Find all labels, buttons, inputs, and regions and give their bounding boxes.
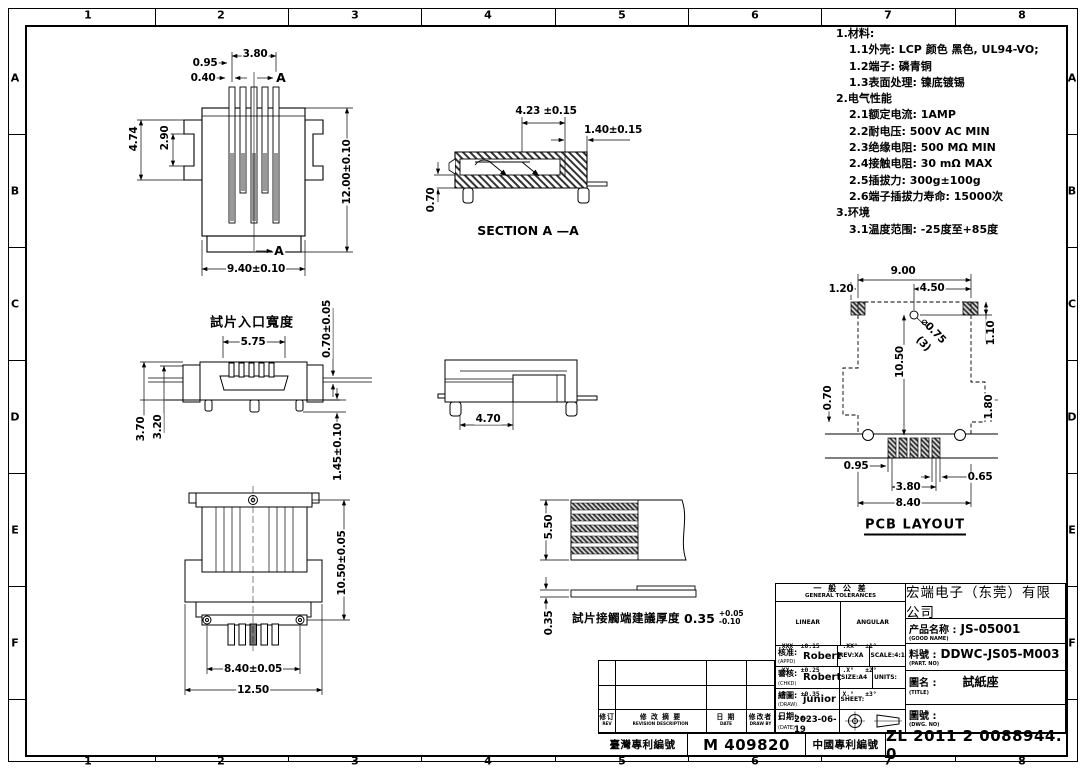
grid-row-label: E [1068, 525, 1076, 536]
note-line: 3.环境 [836, 205, 1080, 221]
cn-patent-value-cell: ZL 2011 2 0088944. 0 [886, 734, 1066, 755]
strip-caption-tolerance: +0.05 -0.10 [719, 610, 744, 626]
grid-col-label: 5 [618, 10, 626, 21]
general-tolerances-header: 一 般 公 差 GENERAL TOLERANCES [776, 584, 905, 602]
grid-tick [9, 473, 25, 474]
grid-tick [821, 9, 822, 25]
rev-cell: REV:XA [838, 646, 870, 667]
checked-sublabel: (CHKD) [778, 681, 796, 687]
angular-label: ANGULAR [843, 619, 904, 627]
grid-row-label: D [10, 412, 19, 423]
pcb-outline-dashed [843, 302, 985, 434]
drawing-name-row: 圖名 : 試紙座 (TITLE) [906, 671, 1065, 704]
side-body [438, 360, 597, 416]
grid-col-label: 1 [84, 10, 92, 21]
linear-label: LINEAR [778, 619, 838, 627]
drawn-sublabel: (DRAW) [778, 702, 797, 708]
grid-tick [9, 134, 25, 135]
dim-pcb-pad-total: 8.40 [895, 498, 922, 509]
grid-tick [9, 360, 25, 361]
dim-front-pin-width: 0.95 [192, 58, 219, 69]
revision-rev-en: REV [599, 721, 615, 726]
grid-tick [155, 9, 156, 25]
dim-strip-width: 5.50 [544, 514, 555, 541]
dim-front-pin-gap: 0.40 [190, 73, 217, 84]
dim-pcb-pad-inset: 1.20 [828, 284, 855, 295]
section-body [449, 152, 607, 203]
product-name-row: 产品名称 : JS-05001 (GOOD NAME) [906, 619, 1065, 644]
pcb-holes [825, 311, 998, 458]
grid-tick [555, 9, 556, 25]
note-line: 3.1温度范围: -25度至+85度 [836, 222, 1080, 238]
grid-tick [9, 247, 25, 248]
grid-row-label: C [1068, 299, 1076, 310]
grid-tick [1066, 473, 1078, 474]
grid-row-label: D [1067, 412, 1076, 423]
strip-view-drawing [512, 476, 752, 666]
approved-sublabel: (APPD) [778, 659, 795, 665]
dim-side-length: 4.70 [475, 414, 502, 425]
grid-col-label: 3 [351, 756, 359, 767]
dim-pcb-hole-y: 1.10 [986, 320, 997, 347]
grid-tick [955, 9, 956, 25]
grid-tick [1066, 360, 1078, 361]
drawing-name-value: 試紙座 [962, 673, 998, 690]
revision-desc-en: REVISION DESCRIPTION [615, 721, 706, 726]
title-block-left: 一 般 公 差 GENERAL TOLERANCES LINEAR .XXX ±… [776, 584, 906, 732]
note-line: 2.4接触电阻: 30 mΩ MAX [836, 156, 1080, 172]
drawn-row: 繪圖: (DRAW) junior SHEET: [776, 689, 905, 711]
dim-entry-total-height: 3.70 [136, 416, 147, 443]
drawn-cell: 繪圖: (DRAW) junior [776, 689, 840, 710]
scale-cell: SCALE:4:1 [870, 646, 905, 667]
drawing-number-label: 圖號 : [909, 707, 936, 722]
part-label: 料號 : [909, 646, 936, 661]
approved-cell: 核准: (APPD) Robert [776, 646, 838, 667]
section-mark-top: A [275, 72, 287, 85]
dim-section-inner: 4.23 ±0.15 [514, 106, 577, 117]
dim-bottom-height: 10.50±0.05 [337, 530, 348, 597]
dim-front-width: 9.40±0.10 [226, 264, 286, 275]
date-cell: 日期: (DATE) 2023-06-19 [776, 710, 840, 732]
side-view-drawing [418, 328, 648, 458]
product-sublabel: (GOOD NAME) [909, 636, 1062, 642]
strip-tol-minus: -0.10 [719, 618, 744, 626]
note-line: 2.2耐电压: 500V AC MIN [836, 124, 1080, 140]
section-title: SECTION A —A [476, 225, 580, 238]
note-line: 1.3表面处理: 镍底镀锡 [836, 75, 1080, 91]
grid-col-label: 8 [1018, 10, 1026, 21]
grid-col-label: 4 [484, 10, 492, 21]
note-line: 2.6端子插拔力寿命: 15000次 [836, 189, 1080, 205]
pcb-layout-drawing [820, 258, 1082, 553]
grid-col-label: 2 [217, 10, 225, 21]
tw-patent-value-cell: M 409820 [688, 734, 806, 755]
approved-row: 核准: (APPD) Robert REV:XA SCALE:4:1 [776, 646, 905, 668]
checked-label: 審核: [778, 668, 797, 679]
drawn-value: junior [803, 694, 836, 705]
strip-caption: 試片接觸端建議厚度 0.35 +0.05 -0.10 [572, 610, 744, 626]
part-value: DDWC-JS05-M003 [940, 647, 1059, 661]
dim-front-height: 12.00±0.10 [342, 139, 353, 206]
dim-section-lip: 0.70 [426, 187, 437, 214]
dim-pcb-tab: 1.80 [984, 394, 995, 421]
revision-header-rev: 修订 REV [599, 707, 615, 732]
grid-tick [1066, 247, 1078, 248]
grid-col-label: 5 [618, 756, 626, 767]
grid-row-label: F [1068, 638, 1076, 649]
tolerance-angular-column: ANGULAR .XX° ±1° .X° ±2° X.° ±3° [841, 602, 906, 645]
tw-patent-label-cell: 臺灣專利編號 [598, 734, 688, 755]
revision-rev-cn: 修订 [599, 713, 615, 721]
entry-body [165, 362, 340, 412]
grid-tick [821, 755, 822, 762]
drawing-name-label: 圖名 : [909, 674, 936, 689]
dim-pcb-pad-gap: 0.65 [967, 472, 994, 483]
pcb-layout-title: PCB LAYOUT [864, 519, 966, 536]
revision-desc-cn: 修 改 摘 要 [615, 713, 706, 721]
grid-tick [555, 755, 556, 762]
grid-tick [1066, 586, 1078, 587]
tw-patent-label: 臺灣專利編號 [610, 737, 676, 752]
section-mark-bottom: A [273, 245, 285, 258]
note-line: 2.3绝缘电阻: 500 MΩ MIN [836, 140, 1080, 156]
grid-col-label: 6 [751, 756, 759, 767]
dim-pcb-pad-offset: 0.95 [843, 461, 870, 472]
dim-entry-slot: 0.70±0.05 [322, 299, 333, 359]
revision-date-cn: 日 期 [706, 713, 746, 721]
dim-strip-thickness: 0.35 [544, 610, 555, 637]
drawn-label: 繪圖: [778, 690, 797, 701]
grid-tick [155, 755, 156, 762]
approved-label: 核准: [778, 647, 797, 658]
revision-by-en: DRAW BY [746, 721, 775, 726]
dim-front-wing: 4.74 [129, 126, 140, 153]
grid-tick [9, 699, 25, 700]
dim-pcb-width: 9.00 [890, 266, 917, 277]
note-line: 1.1外壳: LCP 颜色 黑色, UL94-VO; [836, 42, 1080, 58]
strip-body [571, 500, 696, 597]
grid-tick [1066, 699, 1078, 700]
grid-col-label: 1 [84, 756, 92, 767]
grid-tick [421, 9, 422, 25]
note-line: 1.2端子: 磷青铜 [836, 59, 1080, 75]
entry-view-label: 試片入口寬度 [209, 317, 295, 330]
grid-tick [288, 755, 289, 762]
dim-pcb-length: 10.50 [895, 345, 906, 379]
grid-row-label: F [11, 638, 19, 649]
grid-row-label: B [11, 186, 19, 197]
tw-patent-number: M 409820 [703, 736, 790, 754]
grid-tick [9, 586, 25, 587]
dim-bottom-width: 12.50 [236, 685, 270, 696]
drawing-sheet: 1.材料: 1.1外壳: LCP 颜色 黑色, UL94-VO; 1.2端子: … [0, 0, 1086, 770]
product-label: 产品名称 : [909, 621, 956, 636]
tolerance-title-cn: 一 般 公 差 [776, 584, 905, 593]
grid-row-label: B [1068, 186, 1076, 197]
note-line: 2.电气性能 [836, 91, 1080, 107]
dim-section-edge: 1.40±0.15 [583, 125, 643, 136]
sheet-cell: SHEET: [840, 689, 905, 710]
grid-tick [688, 755, 689, 762]
grid-col-label: 4 [484, 756, 492, 767]
dim-entry-body-height: 3.20 [153, 414, 164, 441]
dim-pcb-hole-x: 4.50 [919, 283, 946, 294]
note-line: 1.材料: [836, 26, 1080, 42]
tolerance-title-en: GENERAL TOLERANCES [776, 593, 905, 599]
strip-caption-text: 試片接觸端建議厚度 [572, 610, 680, 626]
grid-row-label: A [1068, 73, 1077, 84]
revision-date-en: DATE [706, 721, 746, 726]
title-block: 一 般 公 差 GENERAL TOLERANCES LINEAR .XXX ±… [775, 583, 1066, 733]
tolerance-linear-column: LINEAR .XXX ±0.15 .XX ±0.25 .X ±0.35 X. … [776, 602, 841, 645]
bottom-view-drawing [138, 466, 428, 706]
date-sublabel: (DATE) [778, 725, 795, 731]
dim-entry-opening: 5.75 [240, 337, 267, 348]
bottom-body [185, 486, 322, 651]
grid-tick [421, 755, 422, 762]
product-value: JS-05001 [960, 622, 1020, 636]
part-sublabel: (PART. NO) [909, 661, 1062, 667]
grid-row-label: C [11, 299, 19, 310]
grid-row-label: E [11, 525, 19, 536]
grid-tick [1066, 134, 1078, 135]
cn-patent-label-cell: 中國專利編號 [806, 734, 886, 755]
patent-row: 臺灣專利編號 M 409820 中國專利編號 ZL 2011 2 0088944… [598, 733, 1066, 755]
grid-col-label: 6 [751, 10, 759, 21]
company-name: 宏端电子（东莞）有限公司 [906, 584, 1065, 619]
front-view-drawing [125, 32, 410, 297]
grid-row-label: A [11, 73, 20, 84]
dim-bottom-screw-span: 8.40±0.05 [223, 664, 283, 675]
cn-patent-number: ZL 2011 2 0088944. 0 [886, 727, 1066, 763]
drawing-name-sublabel: (TITLE) [909, 690, 1062, 696]
checked-value: Robert [803, 672, 841, 683]
tolerance-table: LINEAR .XXX ±0.15 .XX ±0.25 .X ±0.35 X. … [776, 602, 905, 646]
strip-caption-value: 0.35 [684, 611, 715, 626]
revision-by-cn: 修改者 [746, 713, 775, 721]
units-cell: UNITS: [873, 667, 905, 688]
grid-tick [288, 9, 289, 25]
cn-patent-label: 中國專利編號 [813, 737, 879, 752]
dim-pcb-pad-span: 3.80 [895, 482, 922, 493]
note-line: 2.5插拔力: 300g±100g [836, 173, 1080, 189]
title-block-right: 宏端电子（东莞）有限公司 产品名称 : JS-05001 (GOOD NAME)… [906, 584, 1065, 732]
dim-pcb-notch: 0.70 [823, 385, 834, 412]
grid-tick [688, 9, 689, 25]
approved-value: Robert [803, 651, 841, 662]
revision-header-date: 日 期 DATE [706, 707, 746, 732]
front-pins [202, 87, 305, 223]
technical-notes: 1.材料: 1.1外壳: LCP 颜色 黑色, UL94-VO; 1.2端子: … [836, 26, 1080, 238]
part-number-row: 料號 : DDWC-JS05-M003 (PART. NO) [906, 644, 1065, 671]
revision-table: 修订 REV 修 改 摘 要 REVISION DESCRIPTION 日 期 … [598, 660, 775, 733]
dim-entry-leg: 1.45±0.10 [333, 422, 344, 482]
dim-front-wing-inner: 2.90 [160, 125, 171, 152]
checked-row: 審核: (CHKD) Robert SIZE:A4 UNITS: [776, 667, 905, 689]
grid-col-label: 3 [351, 10, 359, 21]
size-cell: SIZE:A4 [840, 667, 873, 688]
revision-header-by: 修改者 DRAW BY [746, 707, 775, 732]
grid-col-label: 7 [884, 10, 892, 21]
revision-header-desc: 修 改 摘 要 REVISION DESCRIPTION [615, 707, 706, 732]
dim-front-pitch: 3.80 [242, 49, 269, 60]
note-line: 2.1额定电流: 1AMP [836, 107, 1080, 123]
grid-col-label: 2 [217, 756, 225, 767]
checked-cell: 審核: (CHKD) Robert [776, 667, 840, 688]
